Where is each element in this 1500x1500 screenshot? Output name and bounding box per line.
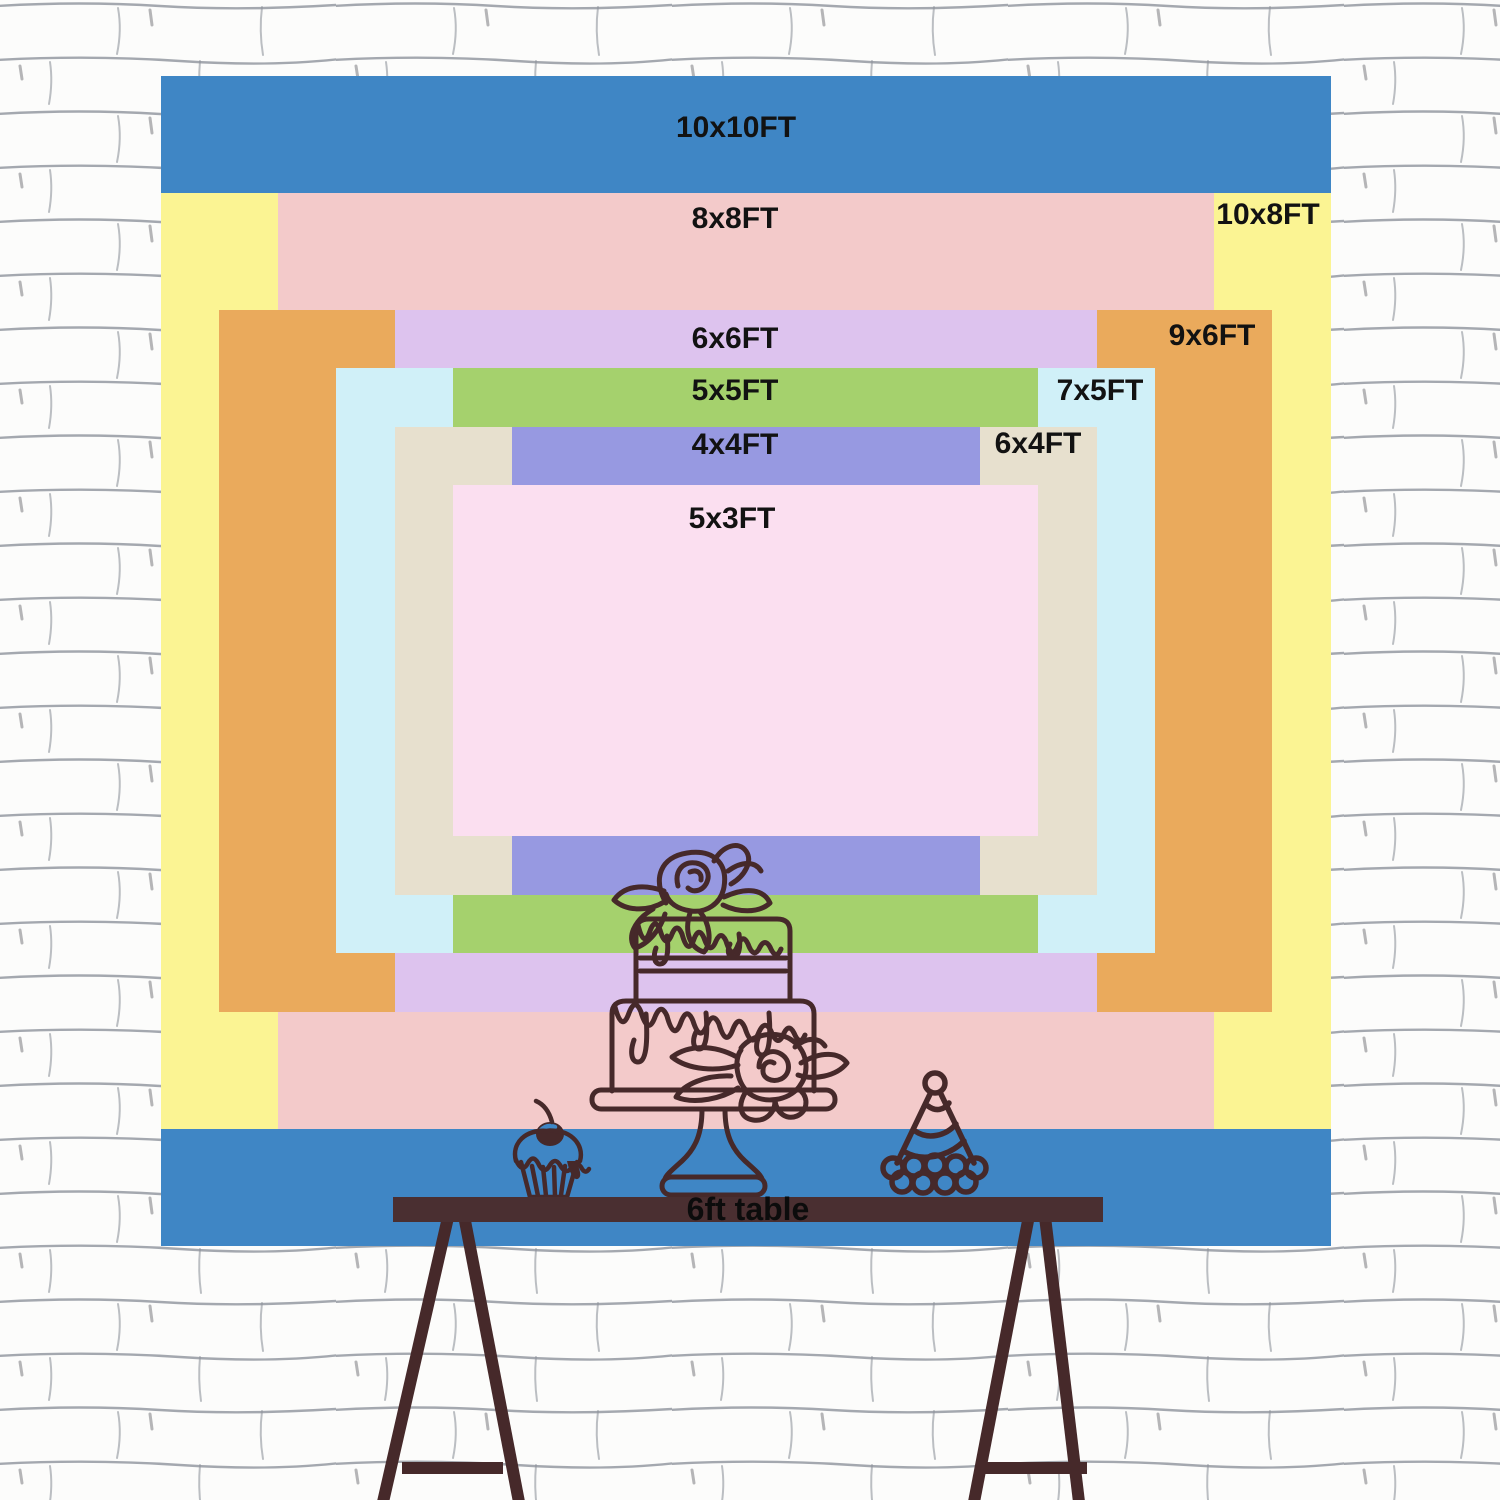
trestle-table-legs — [383, 1200, 1087, 1500]
table-label: 6ft table — [687, 1191, 810, 1228]
tiered-cake-icon — [592, 846, 847, 1195]
party-hat-icon — [883, 1073, 986, 1193]
cupcake-icon — [515, 1101, 589, 1197]
dessert-table-illustration — [0, 0, 1500, 1500]
table-top: 6ft table — [393, 1197, 1103, 1222]
